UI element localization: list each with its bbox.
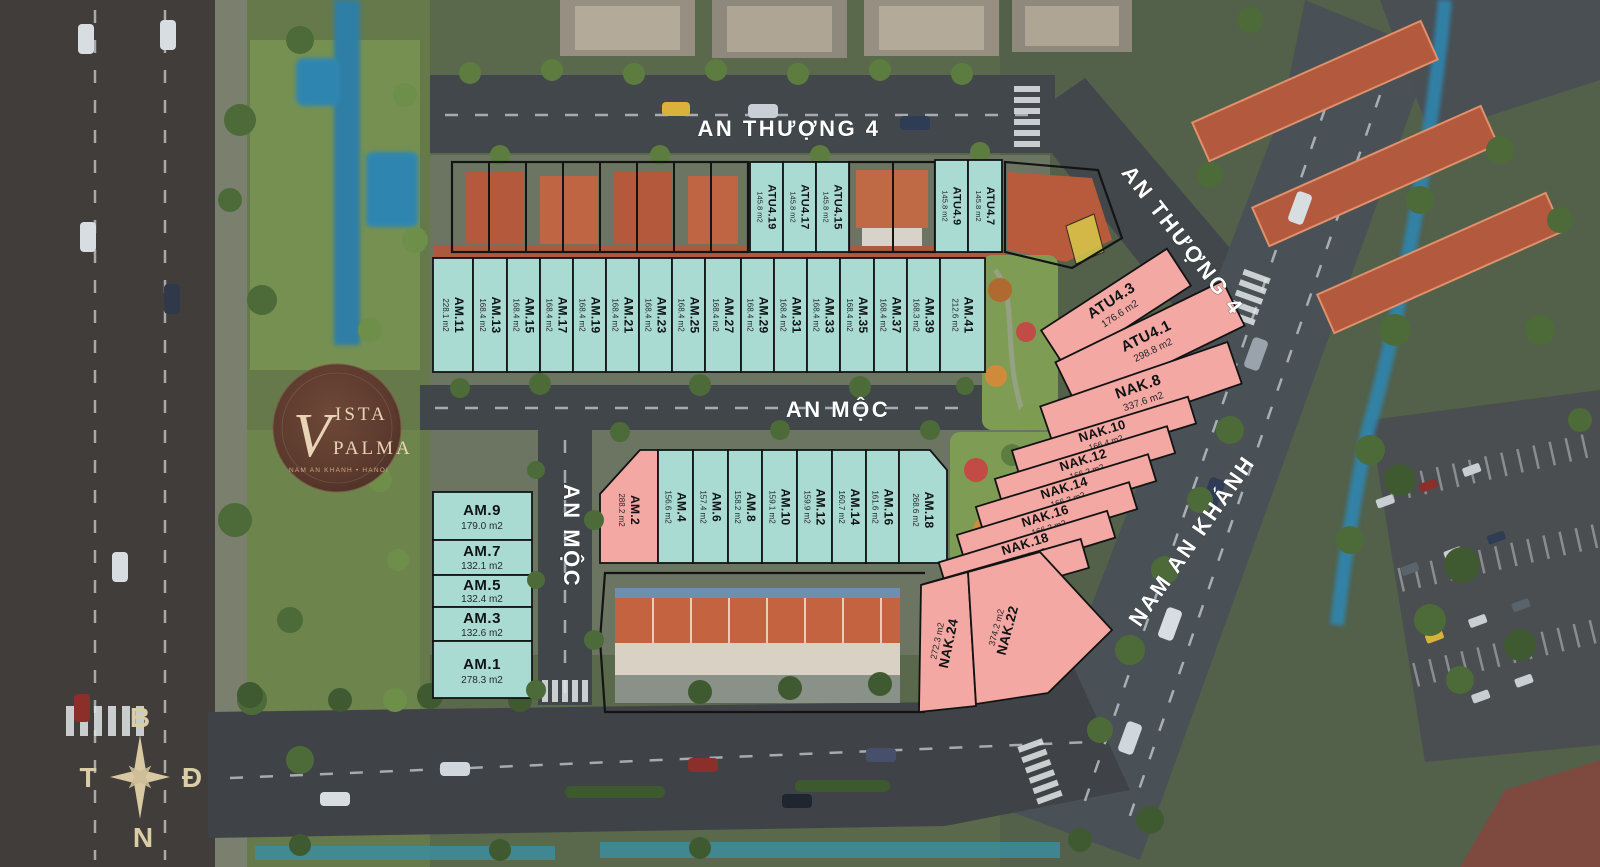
lot-name-label: AM.16: [882, 489, 896, 526]
lot-name-label: ATU4.17: [799, 184, 811, 229]
street-label-an-moc-vertical: AN MỘC: [559, 484, 584, 588]
lot-am-14[interactable]: AM.14160.7 m2: [832, 450, 866, 563]
lot-am-23[interactable]: AM.23168.4 m2: [639, 258, 672, 372]
lot-am-8[interactable]: AM.8158.2 m2: [728, 450, 762, 563]
lot-atu4-7[interactable]: ATU4.7145.8 m2: [968, 160, 1002, 252]
site-plan-map: ATU4.19145.8 m2 ATU4.17145.8 m2 ATU4.151…: [0, 0, 1600, 867]
lot-name-label: AM.23: [655, 297, 669, 334]
lot-area-label: 132.4 m2: [461, 594, 503, 605]
lot-area-label: 168.4 m2: [711, 298, 720, 332]
lot-name-label: AM.6: [710, 492, 724, 522]
lot-name-label: AM.13: [489, 297, 503, 334]
lot-name-label: AM.15: [523, 297, 537, 334]
lot-area-label: 156.6 m2: [664, 490, 673, 524]
lot-am-31[interactable]: AM.31168.4 m2: [774, 258, 807, 372]
lot-area-label: 145.8 m2: [756, 191, 765, 222]
lot-am-9[interactable]: AM.9179.0 m2: [433, 492, 532, 540]
lot-name-label: AM.25: [688, 297, 702, 334]
lot-area-label: 159.1 m2: [768, 490, 777, 524]
lot-am-15[interactable]: AM.15168.4 m2: [507, 258, 540, 372]
lot-area-label: 145.8 m2: [789, 191, 798, 222]
lot-am-33[interactable]: AM.33168.4 m2: [807, 258, 840, 372]
lot-am-27[interactable]: AM.27168.4 m2: [705, 258, 741, 372]
lot-area-label: 160.7 m2: [837, 490, 846, 524]
lot-area-label: 158.2 m2: [733, 490, 742, 524]
lot-area-label: 132.1 m2: [461, 561, 503, 572]
lot-am-13[interactable]: AM.13168.4 m2: [473, 258, 507, 372]
lot-name-label: AM.35: [856, 297, 870, 334]
lot-name-label: ATU4.19: [766, 184, 778, 229]
lot-name-label: AM.39: [923, 297, 937, 334]
lot-name-label: AM.9: [463, 502, 501, 519]
lot-area-label: 179.0 m2: [461, 521, 503, 532]
lot-area-label: 168.4 m2: [644, 298, 653, 332]
lot-atu4-19[interactable]: ATU4.19145.8 m2: [750, 162, 783, 252]
lot-am-19[interactable]: AM.19168.4 m2: [573, 258, 606, 372]
lot-area-label: 168.4 m2: [845, 298, 854, 332]
lot-am-1[interactable]: AM.1278.3 m2: [433, 641, 532, 698]
lot-area-label: 168.4 m2: [779, 298, 788, 332]
lot-atu4-9[interactable]: ATU4.9145.8 m2: [935, 160, 968, 252]
lot-am-35[interactable]: AM.35168.4 m2: [840, 258, 874, 372]
lot-name-label: AM.14: [848, 489, 862, 526]
lot-name-label: AM.29: [757, 297, 771, 334]
logo-word-bottom: PALMA: [333, 438, 413, 459]
lot-am-3[interactable]: AM.3132.6 m2: [433, 607, 532, 641]
lot-area-label: 168.4 m2: [746, 298, 755, 332]
lot-am-29[interactable]: AM.29168.4 m2: [741, 258, 774, 372]
street-label-an-thuong-4-top: AN THƯỢNG 4: [697, 116, 880, 141]
lot-name-label: AM.33: [823, 297, 837, 334]
lot-am-41[interactable]: AM.41212.6 m2: [940, 258, 985, 372]
lot-am-21[interactable]: AM.21168.4 m2: [606, 258, 639, 372]
lot-name-label: AM.8: [744, 492, 758, 522]
logo-word-top: ISTA: [335, 404, 388, 425]
lot-area-label: 161.6 m2: [871, 490, 880, 524]
lot-name-label: AM.1: [463, 656, 501, 673]
lot-name-label: AM.17: [556, 297, 570, 334]
lot-name-label: AM.18: [922, 492, 936, 529]
lot-name-label: AM.41: [962, 297, 976, 334]
compass-north-label: B: [130, 702, 150, 733]
lot-area-label: 157.4 m2: [699, 490, 708, 524]
lot-am-17[interactable]: AM.17168.4 m2: [540, 258, 573, 372]
lot-name-label: AM.19: [589, 297, 603, 334]
lot-area-label: 168.4 m2: [812, 298, 821, 332]
lot-name-label: AM.2: [628, 495, 642, 525]
lot-am-7[interactable]: AM.7132.1 m2: [433, 540, 532, 575]
lot-am-6[interactable]: AM.6157.4 m2: [693, 450, 728, 563]
lot-area-label: 168.4 m2: [611, 298, 620, 332]
lot-am-16[interactable]: AM.16161.6 m2: [866, 450, 899, 563]
lot-area-label: 168.4 m2: [677, 298, 686, 332]
lot-area-label: 145.8 m2: [941, 190, 950, 221]
lot-area-label: 132.6 m2: [461, 628, 503, 639]
lot-name-label: AM.10: [779, 489, 793, 526]
lot-name-label: AM.7: [463, 543, 501, 560]
compass-west-label: T: [79, 762, 96, 793]
lot-area-label: 159.9 m2: [803, 490, 812, 524]
lot-area-label: 212.6 m2: [951, 298, 960, 332]
lot-am-25[interactable]: AM.25168.4 m2: [672, 258, 705, 372]
lot-area-label: 228.1 m2: [441, 298, 450, 332]
lot-area-label: 168.3 m2: [912, 298, 921, 332]
lot-name-label: AM.3: [463, 610, 501, 627]
lot-atu4-17[interactable]: ATU4.17145.8 m2: [783, 162, 816, 252]
lot-area-label: 168.4 m2: [879, 298, 888, 332]
lot-area-label: 288.2 m2: [617, 493, 626, 527]
logo-initial: V: [293, 402, 337, 470]
lot-area-label: 278.3 m2: [461, 675, 503, 686]
logo-tagline: NAM AN KHANH • HANOI: [289, 467, 389, 474]
lot-am-12[interactable]: AM.12159.9 m2: [797, 450, 832, 563]
lot-name-label: AM.12: [814, 489, 828, 526]
lot-name-label: AM.11: [452, 297, 466, 333]
compass-east-label: Đ: [182, 762, 202, 793]
lot-area-label: 145.8 m2: [822, 191, 831, 222]
lot-area-label: 145.8 m2: [974, 190, 983, 221]
lot-name-label: AM.31: [790, 297, 804, 334]
lot-nak-24[interactable]: NAK.24272.3 m2: [919, 572, 976, 712]
lot-name-label: AM.21: [622, 297, 636, 334]
lot-name-label: AM.4: [675, 492, 689, 522]
lot-am-5[interactable]: AM.5132.4 m2: [433, 575, 532, 607]
compass-south-label: N: [133, 822, 153, 853]
lot-name-label: AM.27: [722, 297, 736, 334]
lot-am-10[interactable]: AM.10159.1 m2: [762, 450, 797, 563]
lot-area-label: 168.4 m2: [512, 298, 521, 332]
lot-name-label: AM.37: [890, 297, 904, 334]
lot-name-label: ATU4.7: [984, 187, 996, 226]
lot-name-label: AM.5: [463, 577, 501, 594]
lot-am-4[interactable]: AM.4156.6 m2: [658, 450, 693, 563]
street-label-an-moc-horizontal: AN MỘC: [786, 397, 890, 422]
lot-area-label: 168.4 m2: [545, 298, 554, 332]
lot-am-37[interactable]: AM.37168.4 m2: [874, 258, 907, 372]
lot-am-11[interactable]: AM.11228.1 m2: [433, 258, 473, 372]
lot-area-label: 268.6 m2: [911, 493, 920, 527]
lot-am-39[interactable]: AM.39168.3 m2: [907, 258, 940, 372]
lot-am-18[interactable]: AM.18268.6 m2: [899, 450, 947, 563]
lot-name-label: ATU4.15: [832, 184, 844, 229]
lot-atu4-15[interactable]: ATU4.15145.8 m2: [816, 162, 849, 252]
lot-area-label: 168.4 m2: [578, 298, 587, 332]
lot-area-label: 168.4 m2: [478, 298, 487, 332]
lot-name-label: ATU4.9: [951, 187, 963, 226]
